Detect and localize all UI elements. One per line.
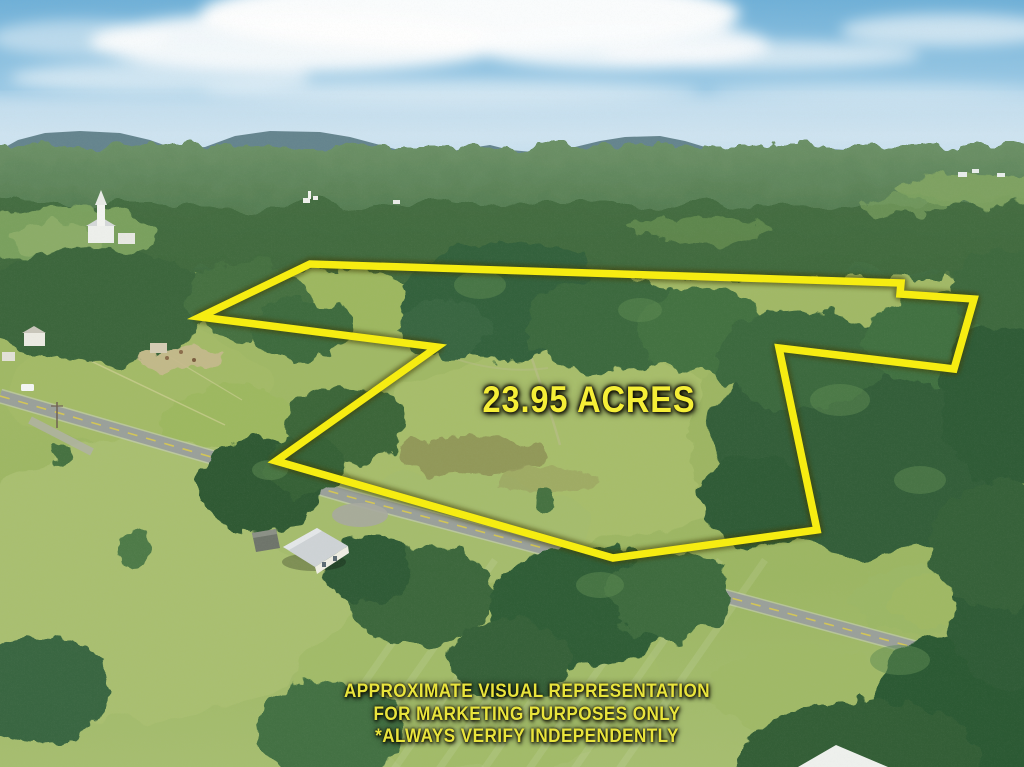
disclaimer: APPROXIMATE VISUAL REPRESENTATION FOR MA… [344, 681, 710, 749]
disclaimer-line-3: *ALWAYS VERIFY INDEPENDENTLY [344, 726, 710, 749]
disclaimer-line-1: APPROXIMATE VISUAL REPRESENTATION [344, 681, 710, 704]
disclaimer-line-2: FOR MARKETING PURPOSES ONLY [344, 704, 710, 727]
aerial-photo: 23.95 ACRES APPROXIMATE VISUAL REPRESENT… [0, 0, 1024, 767]
acreage-label: 23.95 ACRES [483, 381, 696, 418]
